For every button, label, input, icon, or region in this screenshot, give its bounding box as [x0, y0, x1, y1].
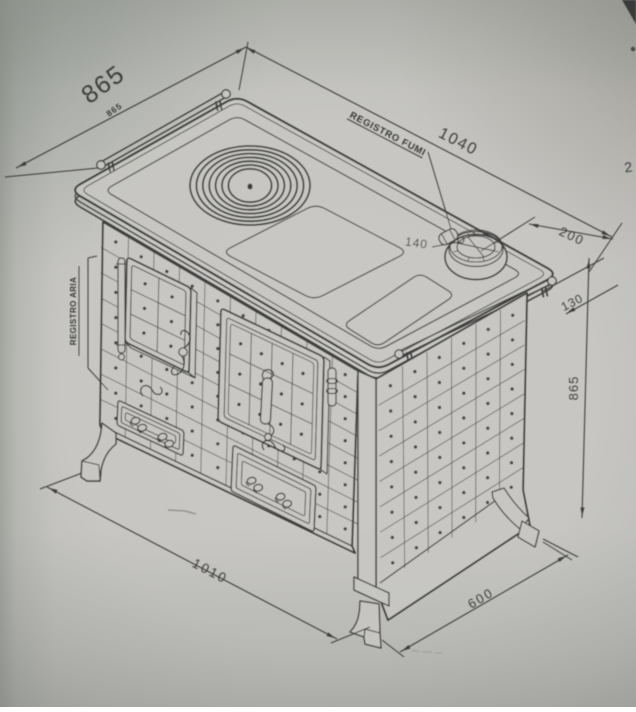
- svg-text:REGISTRO ARIA: REGISTRO ARIA: [69, 277, 78, 345]
- svg-text:865: 865: [566, 376, 581, 401]
